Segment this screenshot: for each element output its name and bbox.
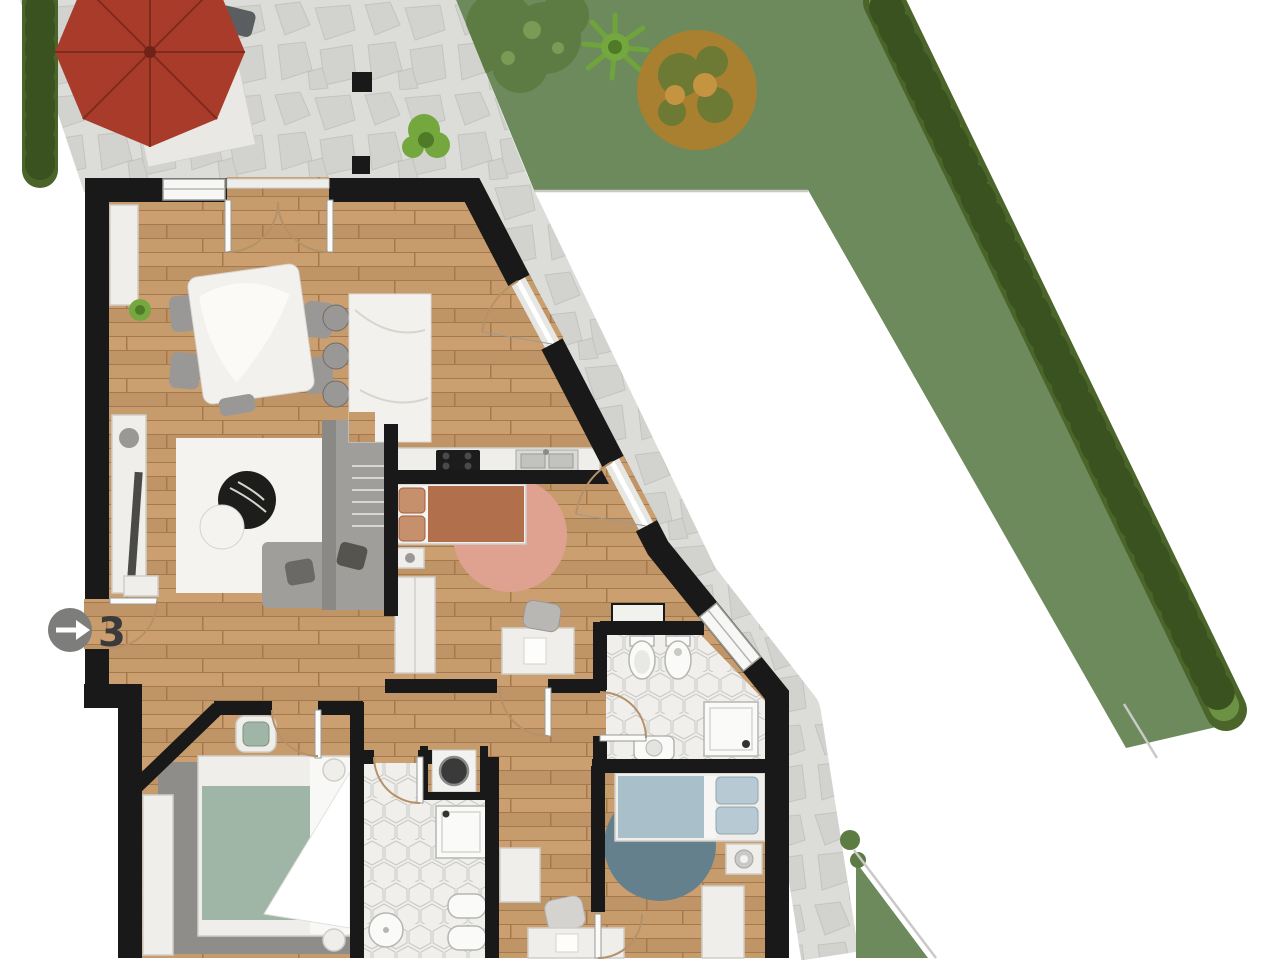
- cabinet: [500, 848, 540, 902]
- shower: [704, 702, 758, 756]
- washing-machine: [432, 750, 476, 792]
- console: [124, 576, 158, 596]
- desk-chair: [522, 599, 562, 633]
- bar-stool: [323, 305, 349, 331]
- pillow: [399, 516, 425, 541]
- decor-bowl: [119, 428, 139, 448]
- double-sink: [516, 449, 578, 472]
- bidet: [665, 636, 691, 679]
- double-bed: [615, 773, 765, 841]
- wardrobe: [143, 795, 173, 955]
- pouf: [236, 716, 276, 752]
- toilet: [629, 636, 655, 679]
- bar-stool: [323, 343, 349, 369]
- pillow: [716, 777, 758, 804]
- shrub: [840, 830, 860, 850]
- grass-corner: [856, 862, 928, 958]
- desk-papers: [556, 934, 578, 952]
- island-notch: [349, 412, 375, 442]
- window: [163, 179, 225, 200]
- throw-pillow: [284, 558, 316, 586]
- unit-number-label: 3: [98, 610, 126, 656]
- column: [352, 156, 370, 174]
- floor-plan-page: 3: [0, 0, 1280, 960]
- bedside-shelf: [323, 929, 345, 951]
- desk-papers: [524, 638, 546, 664]
- pillow: [399, 488, 425, 513]
- sideboard: [110, 205, 138, 305]
- bar-stool: [323, 381, 349, 407]
- desk: [702, 886, 744, 958]
- washbasin: [369, 913, 403, 947]
- cooktop: [436, 450, 480, 472]
- orange-tree: [637, 30, 757, 150]
- plant: [135, 305, 145, 315]
- terrace: [20, 0, 534, 192]
- shower: [436, 806, 486, 858]
- floor-plan: 3: [0, 0, 1280, 960]
- column: [352, 72, 372, 92]
- toilet: [448, 894, 486, 918]
- pillow: [716, 807, 758, 834]
- double-bed: [396, 484, 526, 544]
- side-table: [200, 505, 244, 549]
- lamp: [405, 553, 415, 563]
- dining-chair: [168, 352, 201, 390]
- bedside-shelf: [323, 759, 345, 781]
- niche-wall: [420, 792, 488, 800]
- bidet: [448, 926, 486, 950]
- double-bed: [198, 756, 350, 951]
